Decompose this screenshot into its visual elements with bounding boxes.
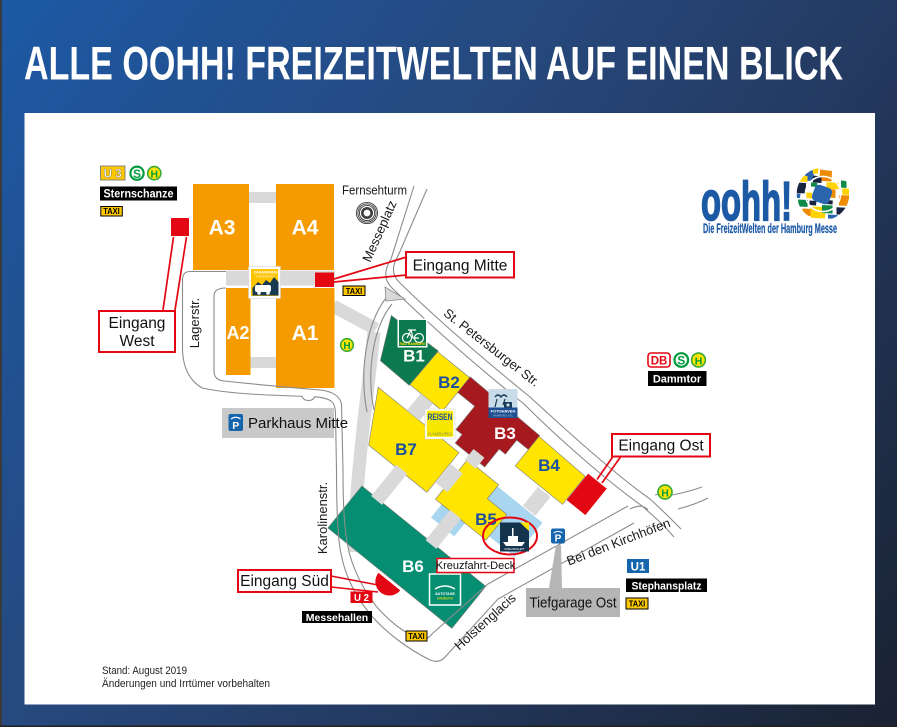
svg-text:Kreuzfahrt-Deck: Kreuzfahrt-Deck xyxy=(436,560,516,572)
svg-text:TAXI: TAXI xyxy=(346,287,363,296)
svg-text:Messehallen: Messehallen xyxy=(306,612,368,624)
svg-text:S: S xyxy=(133,167,141,181)
svg-text:Stephansplatz: Stephansplatz xyxy=(632,580,702,592)
svg-text:TAXI: TAXI xyxy=(408,632,425,641)
svg-text:HAMBURG XXL: HAMBURG XXL xyxy=(493,414,514,418)
svg-text:West: West xyxy=(119,333,155,350)
svg-text:B3: B3 xyxy=(494,424,516,443)
svg-text:U1: U1 xyxy=(631,562,646,574)
svg-text:B6: B6 xyxy=(402,557,424,576)
svg-text:Eingang Mitte: Eingang Mitte xyxy=(413,258,508,275)
svg-text:P: P xyxy=(232,420,239,432)
svg-text:Dammtor: Dammtor xyxy=(653,374,702,386)
svg-text:S: S xyxy=(677,354,685,368)
svg-text:Parkhaus Mitte: Parkhaus Mitte xyxy=(248,415,348,432)
svg-text:A1: A1 xyxy=(292,322,319,345)
svg-text:REISEN: REISEN xyxy=(428,412,453,423)
svg-text:U 3: U 3 xyxy=(104,169,122,181)
svg-text:AUTOTAGE: AUTOTAGE xyxy=(435,592,455,596)
svg-text:KREUZFAHRT: KREUZFAHRT xyxy=(505,547,525,551)
svg-text:Die FreizeitWelten der Hamburg: Die FreizeitWelten der Hamburg Messe xyxy=(703,221,837,236)
svg-text:B7: B7 xyxy=(395,440,417,459)
svg-text:U 2: U 2 xyxy=(354,592,369,604)
svg-text:A4: A4 xyxy=(292,217,319,240)
svg-text:HAMBURG: HAMBURG xyxy=(428,432,452,437)
svg-text:H: H xyxy=(695,355,703,367)
svg-text:Eingang Süd: Eingang Süd xyxy=(240,573,329,590)
svg-text:H: H xyxy=(151,168,159,180)
svg-text:HAMBURG: HAMBURG xyxy=(437,597,454,601)
svg-text:A2: A2 xyxy=(226,323,249,343)
svg-text:P: P xyxy=(555,534,562,545)
svg-text:B4: B4 xyxy=(538,456,560,475)
svg-text:TAXI: TAXI xyxy=(629,600,646,609)
svg-text:A3: A3 xyxy=(209,217,236,240)
svg-text:RAD HAMBURG: RAD HAMBURG xyxy=(400,342,426,346)
svg-text:HAMBURG: HAMBURG xyxy=(256,275,275,279)
svg-text:H: H xyxy=(661,487,669,499)
svg-text:TAXI: TAXI xyxy=(103,207,120,216)
svg-text:Änderungen und Irrtümer vorbeh: Änderungen und Irrtümer vorbehalten xyxy=(102,678,270,690)
svg-text:DB: DB xyxy=(651,355,668,367)
svg-text:Tiefgarage Ost: Tiefgarage Ost xyxy=(530,596,617,612)
svg-text:ALLE OOHH! FREIZEITWELTEN AUF: ALLE OOHH! FREIZEITWELTEN AUF EINEN BLIC… xyxy=(24,38,843,91)
svg-text:Stand: August 2019: Stand: August 2019 xyxy=(102,665,187,677)
svg-text:Lagerstr.: Lagerstr. xyxy=(187,298,202,349)
svg-text:Fernsehturm: Fernsehturm xyxy=(342,183,407,198)
svg-text:H: H xyxy=(343,341,350,352)
svg-text:Sternschanze: Sternschanze xyxy=(104,187,174,201)
svg-text:B1: B1 xyxy=(403,347,425,366)
svg-text:Karolinenstr.: Karolinenstr. xyxy=(315,482,330,554)
svg-text:Eingang: Eingang xyxy=(109,315,166,332)
svg-text:Eingang Ost: Eingang Ost xyxy=(618,438,704,455)
svg-text:B2: B2 xyxy=(438,373,460,392)
